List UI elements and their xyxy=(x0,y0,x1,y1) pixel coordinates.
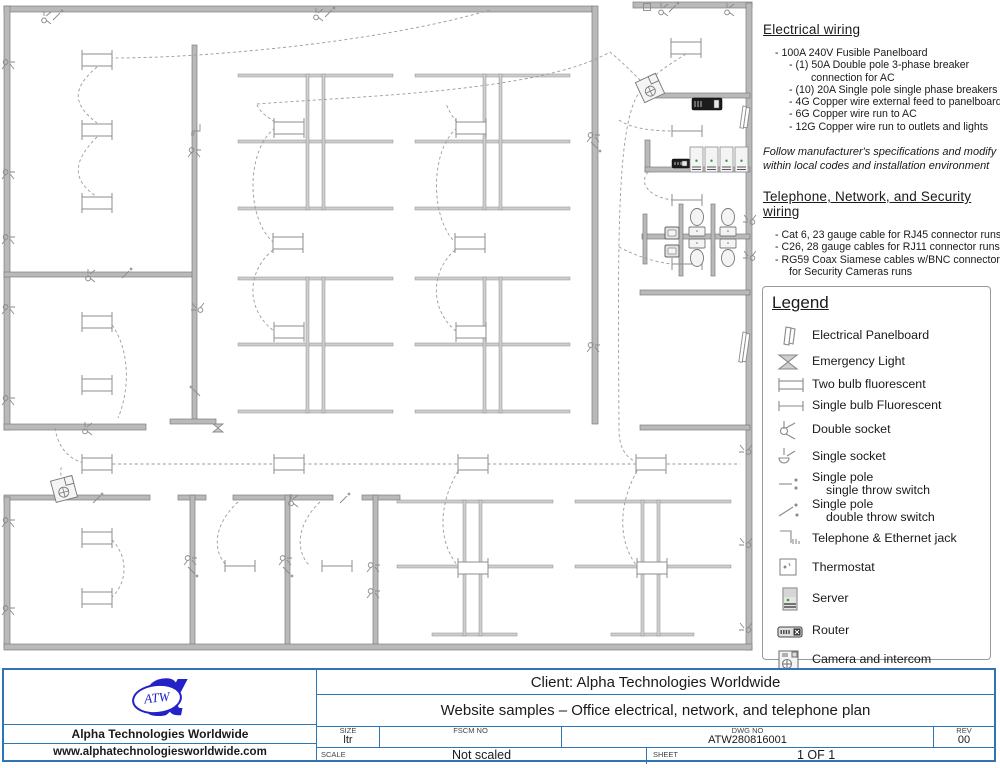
wiring-run xyxy=(82,10,490,58)
wall xyxy=(592,6,598,424)
toilet-symbol xyxy=(689,209,705,237)
wall xyxy=(4,6,592,12)
spec-disclaimer: Follow manufacturer's specifications and… xyxy=(763,145,997,173)
cubicle-partition xyxy=(238,343,393,346)
wiring-run xyxy=(253,128,275,242)
drawing-title: Website samples – Office electrical, net… xyxy=(317,695,994,727)
legend-item: Single socket xyxy=(772,442,990,470)
scale-value: Not scaled xyxy=(317,750,646,761)
two-bulb-fluorescent-symbol xyxy=(82,588,112,608)
spdt-switch-icon xyxy=(772,499,808,523)
company-website: www.alphatechnologiesworldwide.com xyxy=(4,743,316,760)
note-line: - 4G Copper wire external feed to panelb… xyxy=(763,96,997,108)
wiring-run xyxy=(644,172,672,200)
rev-cell: REV 00 xyxy=(934,727,994,747)
legend-item-label: Single polesingle throw switch xyxy=(808,471,930,496)
wall xyxy=(4,6,10,430)
rev-value: 00 xyxy=(934,735,994,746)
two-bulb-fluorescent-symbol xyxy=(456,322,486,342)
legend-item-label: Single socket xyxy=(808,450,886,463)
cubicle-partition xyxy=(238,410,393,413)
legend-item: Double socket xyxy=(772,416,990,442)
legend-item-label: Telephone & Ethernet jack xyxy=(808,532,957,545)
cubicle-partition xyxy=(415,410,570,413)
wiring-run xyxy=(112,540,124,597)
router-icon xyxy=(772,619,808,643)
wall xyxy=(170,419,216,424)
title-block-row3: SIZE ltr FSCM NO DWG NO ATW280816001 REV… xyxy=(317,727,994,747)
wiring-run xyxy=(78,137,97,197)
single-socket-icon xyxy=(772,444,808,468)
note-line: - 100A 240V Fusible Panelboard xyxy=(763,47,997,59)
thermostat-icon xyxy=(772,555,808,579)
server-symbol xyxy=(735,147,748,172)
dwg-cell: DWG NO ATW280816001 xyxy=(562,727,934,747)
switch-symbol xyxy=(340,493,350,503)
two-bulb-fluorescent-symbol xyxy=(455,233,485,253)
wall xyxy=(362,495,400,500)
legend-item: Router xyxy=(772,615,990,646)
cubicle-partition xyxy=(322,74,325,210)
legend-item: Two bulb fluorescent xyxy=(772,374,990,395)
cubicle-partition xyxy=(575,500,731,503)
two-bulb-fluorescent-symbol xyxy=(82,312,112,332)
wall xyxy=(4,272,194,277)
router-symbol xyxy=(692,98,722,110)
double-socket-symbol xyxy=(42,11,51,24)
cubicle-partition xyxy=(483,74,486,210)
legend-item: Single bulb Fluorescent xyxy=(772,395,990,416)
legend-item: Telephone & Ethernet jack xyxy=(772,524,990,552)
wall xyxy=(711,204,715,276)
wiring-run xyxy=(443,471,458,566)
client-line: Client: Alpha Technologies Worldwide xyxy=(317,670,994,695)
cubicle-partition xyxy=(415,343,570,346)
floor-plan xyxy=(0,0,760,666)
sheet-value: 1 OF 1 xyxy=(797,750,835,761)
wiring-run xyxy=(217,502,238,565)
two-bulb-fluorescent-symbol xyxy=(456,118,486,138)
wiring-run xyxy=(257,105,275,122)
server-icon xyxy=(772,587,808,611)
logo-atw-text: ATW xyxy=(143,689,170,707)
legend-items: Electrical PanelboardEmergency LightTwo … xyxy=(772,322,990,673)
toilet-symbol xyxy=(720,239,736,267)
wall xyxy=(373,495,378,648)
single-bulb-fluorescent-symbol xyxy=(672,125,702,137)
legend-title: Legend xyxy=(772,293,990,313)
disclaimer-line: within local codes and installation envi… xyxy=(763,159,997,173)
fscm-label: FSCM NO xyxy=(380,727,561,735)
legend-item-label: Two bulb fluorescent xyxy=(808,378,926,391)
sheet-label: SHEET xyxy=(653,751,678,759)
legend-item-label: Double socket xyxy=(808,423,891,436)
toilet-symbol xyxy=(720,209,736,237)
single-bulb-fluorescent-symbol xyxy=(322,560,352,572)
wiring-run xyxy=(78,67,97,123)
cubicle-partition xyxy=(306,74,309,210)
note-line: - RG59 Coax Siamese cables w/BNC connect… xyxy=(763,254,997,266)
legend-item-label: Single bulb Fluorescent xyxy=(808,399,942,412)
legend-item-label: Server xyxy=(808,592,849,605)
legend-item-label: Thermostat xyxy=(808,561,875,574)
two-bulb-fluorescent-symbol xyxy=(82,375,112,395)
cubicle-partition xyxy=(415,140,570,143)
wiring-run xyxy=(300,502,320,565)
single-bulb-fluorescent-symbol xyxy=(225,560,255,572)
legend-item-label: Single poledouble throw switch xyxy=(808,498,935,523)
size-cell: SIZE ltr xyxy=(317,727,380,747)
wall xyxy=(233,495,333,500)
wall xyxy=(640,290,750,295)
dwg-number: ATW280816001 xyxy=(562,735,933,746)
wall xyxy=(4,497,10,648)
company-logo: α ATW xyxy=(4,670,316,724)
company-name: Alpha Technologies Worldwide xyxy=(4,724,316,743)
note-line: - Cat 6, 23 gauge cable for RJ45 connect… xyxy=(763,229,997,241)
legend-item: Single polesingle throw switch xyxy=(772,470,990,497)
legend-item-label: Emergency Light xyxy=(808,355,905,368)
two-bulb-fluorescent-symbol xyxy=(274,118,304,138)
size-value: ltr xyxy=(317,735,379,746)
two-bulb-fluorescent-symbol xyxy=(273,233,303,253)
legend-item: Thermostat xyxy=(772,552,990,582)
fscm-cell: FSCM NO xyxy=(380,727,562,747)
cubicle-partition xyxy=(483,277,486,413)
cubicle-partition xyxy=(238,140,393,143)
notes-panel: Electrical wiring - 100A 240V Fusible Pa… xyxy=(763,22,997,278)
cubicle-partition xyxy=(397,500,553,503)
legend-box: Legend Electrical PanelboardEmergency Li… xyxy=(762,286,991,660)
server-symbol xyxy=(690,147,703,172)
sink-symbol xyxy=(665,227,679,239)
wall xyxy=(4,424,146,430)
wall xyxy=(640,425,750,430)
router-symbol xyxy=(672,159,690,168)
wiring-run xyxy=(253,250,274,331)
two-bulb-fluorescent-symbol xyxy=(82,193,112,213)
note-line: - 12G Copper wire run to outlets and lig… xyxy=(763,121,997,133)
cubicle-partition xyxy=(306,277,309,413)
cubicle-partition xyxy=(238,74,393,77)
wall xyxy=(643,214,647,264)
note-line: for Security Cameras runs xyxy=(763,266,997,278)
electrical-wiring-title: Electrical wiring xyxy=(763,22,997,37)
cubicle-partition xyxy=(322,277,325,413)
spst-switch-icon xyxy=(772,472,808,496)
server-symbol xyxy=(705,147,718,172)
panelboard-icon xyxy=(772,324,808,348)
legend-item: Single poledouble throw switch xyxy=(772,497,990,524)
note-line: - (1) 50A Double pole 3-phase breaker xyxy=(763,59,997,71)
legend-item: Electrical Panelboard xyxy=(772,322,990,349)
disclaimer-line: Follow manufacturer's specifications and… xyxy=(763,145,997,159)
two-bulb-fluorescent-symbol xyxy=(458,454,488,474)
two-bulb-fluorescent-symbol xyxy=(671,38,701,58)
server-symbol xyxy=(720,147,733,172)
legend-item: Emergency Light xyxy=(772,349,990,374)
cubicle-partition xyxy=(499,277,502,413)
fluorescent-single-bulb-icon xyxy=(772,394,808,418)
cubicle-partition xyxy=(238,207,393,210)
toilet-symbol xyxy=(689,239,705,267)
wall xyxy=(192,45,197,423)
cubicle-partition xyxy=(415,277,570,280)
note-line: - (10) 20A Single pole single phase brea… xyxy=(763,84,997,96)
drawing-sheet: Electrical wiring - 100A 240V Fusible Pa… xyxy=(0,0,1000,768)
title-block-left: α ATW Alpha Technologies Worldwide www.a… xyxy=(4,670,317,760)
note-line: - C26, 28 gauge cables for RJ11 connecto… xyxy=(763,241,997,253)
wiring-run xyxy=(112,325,126,418)
two-bulb-fluorescent-symbol xyxy=(82,454,112,474)
network-wiring-title: Telephone, Network, and Security wiring xyxy=(763,189,997,219)
two-bulb-fluorescent-symbol xyxy=(82,528,112,548)
wiring-run xyxy=(257,52,644,104)
sheet-cell: SHEET 1 OF 1 xyxy=(647,748,994,764)
title-block: α ATW Alpha Technologies Worldwide www.a… xyxy=(2,668,996,762)
network-wiring-list: - Cat 6, 23 gauge cable for RJ45 connect… xyxy=(763,229,997,278)
title-block-row4: SCALE Not scaled SHEET 1 OF 1 xyxy=(317,747,994,764)
electrical-wiring-list: - 100A 240V Fusible Panelboard- (1) 50A … xyxy=(763,47,997,133)
telephone-ethernet-jack-icon xyxy=(772,526,808,550)
wall xyxy=(679,204,683,276)
double-socket-icon xyxy=(772,417,808,441)
scale-cell: SCALE Not scaled xyxy=(317,748,647,764)
note-line: connection for AC xyxy=(763,72,997,84)
cubicle-partition xyxy=(611,633,694,636)
emergency-light-symbol xyxy=(213,424,223,432)
legend-item-label: Router xyxy=(808,624,849,637)
two-bulb-fluorescent-symbol xyxy=(458,558,488,578)
cubicle-partition xyxy=(432,633,517,636)
legend-item: Server xyxy=(772,582,990,615)
wiring-run xyxy=(436,250,456,331)
cubicle-partition xyxy=(238,277,393,280)
single-bulb-fluorescent-symbol xyxy=(672,194,702,206)
wall xyxy=(4,644,752,650)
legend-item-label: Electrical Panelboard xyxy=(808,329,929,342)
wiring-run xyxy=(436,128,457,242)
wiring-run xyxy=(618,90,645,464)
note-line: - 6G Copper wire run to AC xyxy=(763,108,997,120)
cubicle-partition xyxy=(499,74,502,210)
two-bulb-fluorescent-symbol xyxy=(636,454,666,474)
title-block-right: Client: Alpha Technologies Worldwide Web… xyxy=(317,670,994,760)
two-bulb-fluorescent-symbol xyxy=(274,454,304,474)
emergency-light-icon xyxy=(772,350,808,374)
wiring-run xyxy=(619,120,672,131)
sink-symbol xyxy=(665,245,679,257)
wiring-run xyxy=(446,104,457,122)
two-bulb-fluorescent-symbol xyxy=(274,322,304,342)
wiring-run xyxy=(623,471,637,566)
legend-item-label: Camera and intercom xyxy=(808,653,931,666)
wall xyxy=(746,3,752,650)
